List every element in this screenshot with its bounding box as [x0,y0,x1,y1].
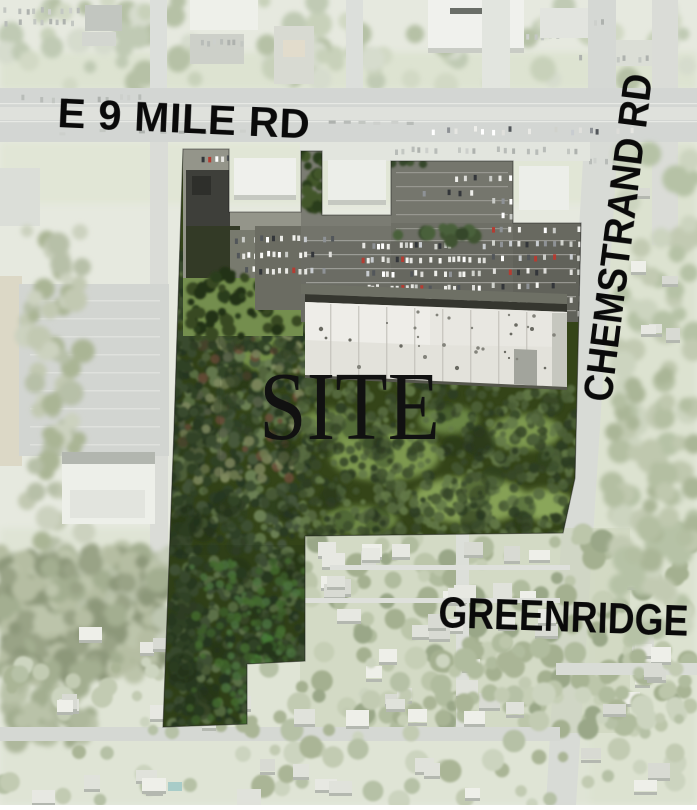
svg-text:SITE: SITE [259,353,440,460]
svg-text:GREENRIDGE: GREENRIDGE [438,588,690,646]
